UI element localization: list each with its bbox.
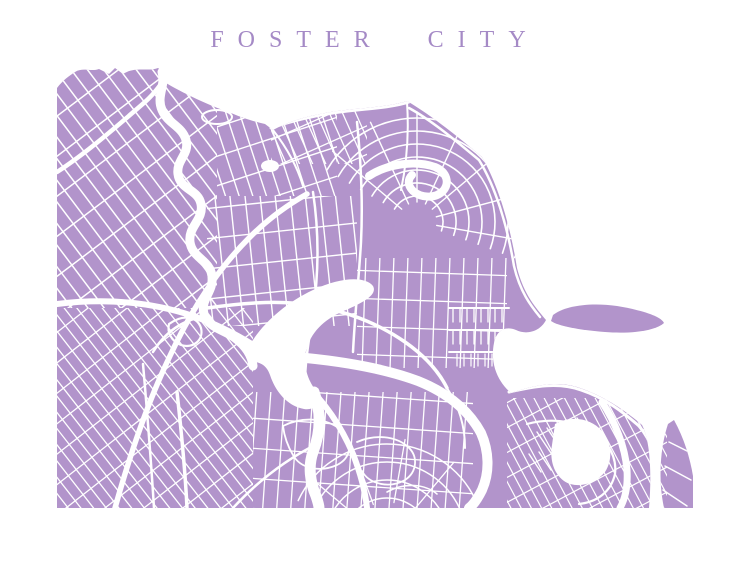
foster-city-map (57, 62, 693, 508)
land-shape (551, 304, 664, 332)
page-title: FOSTER CITY (0, 27, 750, 54)
map-canvas (57, 62, 693, 508)
pond (261, 160, 279, 172)
